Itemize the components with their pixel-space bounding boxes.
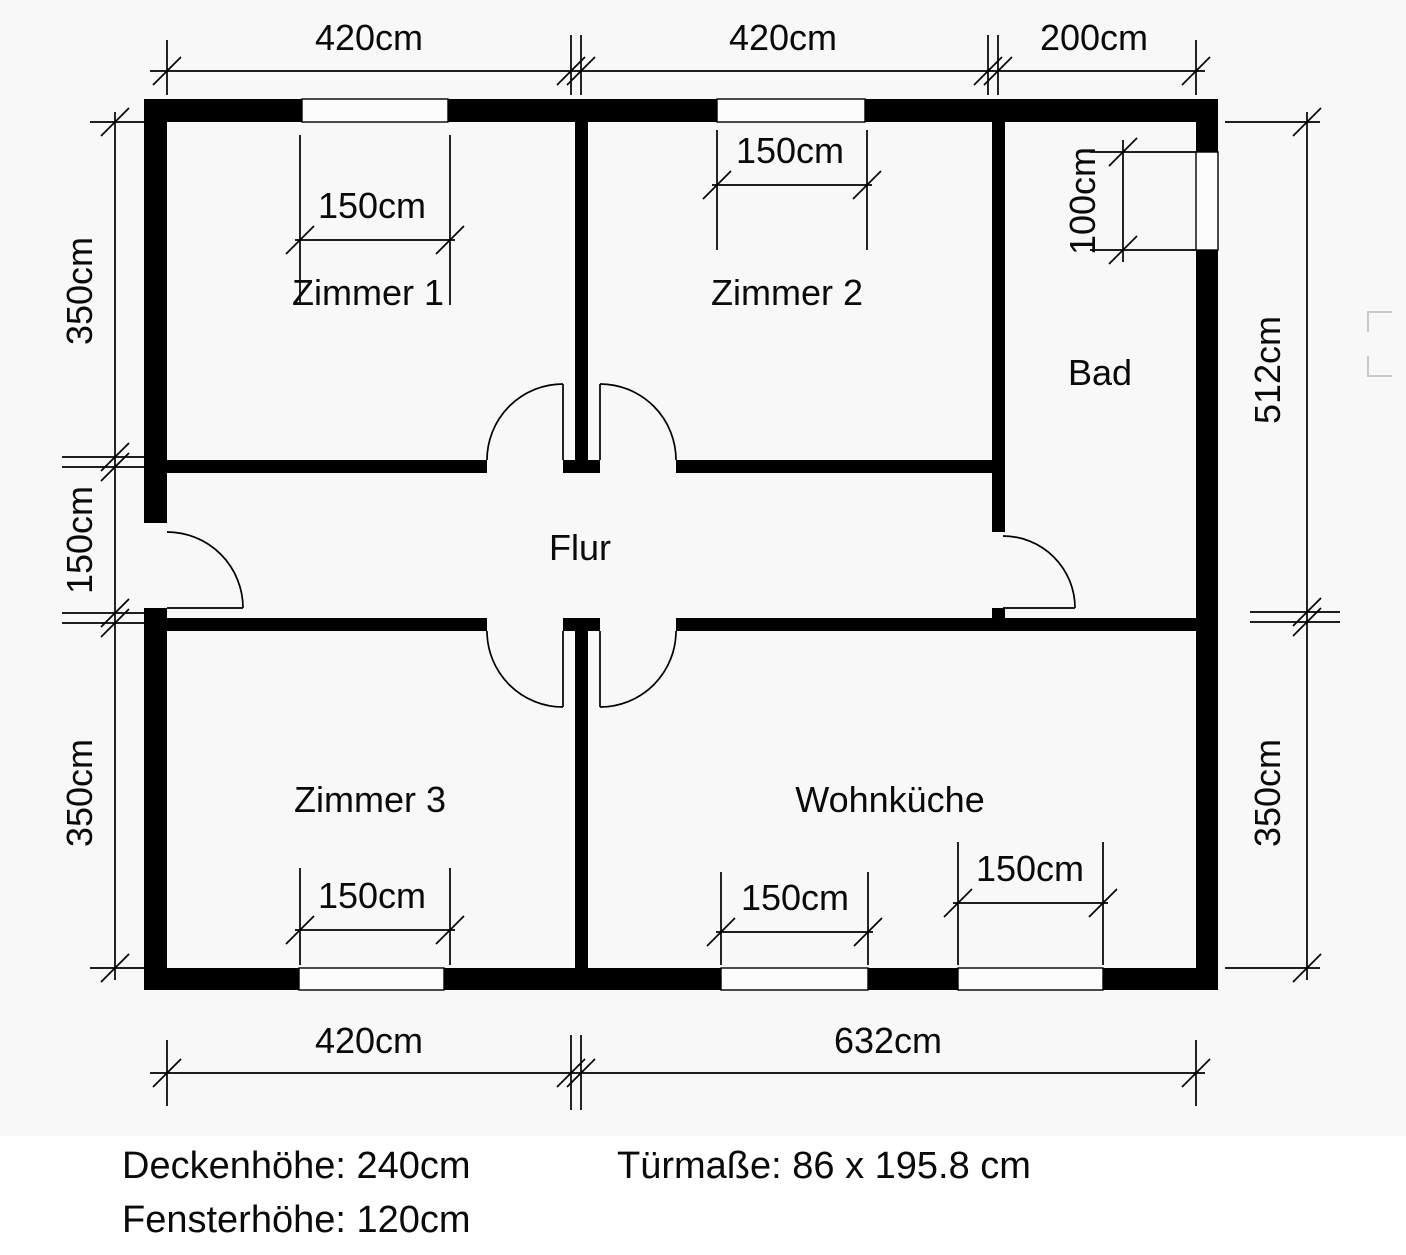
wall-zimmer3-wohnkueche bbox=[575, 618, 588, 968]
window-dim-label-zimmer2: 150cm bbox=[736, 130, 844, 171]
window-bad bbox=[1196, 152, 1218, 250]
window-zimmer3 bbox=[299, 968, 444, 990]
wall-left-lower bbox=[144, 608, 167, 990]
room-label-zimmer2: Zimmer 2 bbox=[711, 272, 863, 313]
dim-label-bottom-right: 632cm bbox=[834, 1020, 942, 1061]
note-door-size: Türmaße: 86 x 195.8 cm bbox=[617, 1145, 1031, 1187]
wall-flur-bottom-left bbox=[167, 618, 487, 631]
dim-label-left-mid: 150cm bbox=[59, 486, 100, 594]
room-label-flur: Flur bbox=[549, 527, 611, 568]
dim-label-top-right: 200cm bbox=[1040, 17, 1148, 58]
window-dim-label-bad: 100cm bbox=[1062, 147, 1103, 255]
dim-label-bottom-left: 420cm bbox=[315, 1020, 423, 1061]
dim-label-right-bottom: 350cm bbox=[1247, 739, 1288, 847]
dim-label-left-top: 350cm bbox=[59, 237, 100, 345]
room-label-wohnkueche: Wohnküche bbox=[795, 779, 984, 820]
room-label-zimmer1: Zimmer 1 bbox=[292, 272, 444, 313]
wall-left-upper bbox=[144, 99, 167, 523]
window-dim-label-zimmer1: 150cm bbox=[318, 185, 426, 226]
wall-bad-left-stub bbox=[992, 608, 1005, 631]
wall-bad-left bbox=[992, 122, 1005, 532]
wall-flur-bottom-right bbox=[676, 618, 1196, 631]
wall-zimmer1-zimmer2 bbox=[575, 122, 588, 473]
window-zimmer1 bbox=[302, 99, 448, 122]
dim-label-top-mid: 420cm bbox=[729, 17, 837, 58]
dim-label-left-bottom: 350cm bbox=[59, 739, 100, 847]
wall-flur-top-left bbox=[167, 460, 487, 473]
window-dim-label-zimmer3: 150cm bbox=[318, 875, 426, 916]
floor-plan-drawing: 420cm 420cm 200cm 420cm 632cm 350cm 150c… bbox=[0, 0, 1406, 1255]
room-label-zimmer3: Zimmer 3 bbox=[294, 779, 446, 820]
room-label-bad: Bad bbox=[1068, 352, 1132, 393]
plan-notes: Deckenhöhe: 240cm Fensterhöhe: 120cm Tür… bbox=[122, 1145, 1031, 1241]
plan-background bbox=[0, 0, 1406, 1136]
note-ceiling-height: Deckenhöhe: 240cm bbox=[122, 1145, 471, 1187]
window-dim-label-wohnkueche-left: 150cm bbox=[741, 877, 849, 918]
window-wohnkueche-left bbox=[721, 968, 868, 990]
note-window-height: Fensterhöhe: 120cm bbox=[122, 1199, 471, 1241]
window-dim-label-wohnkueche-right: 150cm bbox=[976, 848, 1084, 889]
dim-label-top-left: 420cm bbox=[315, 17, 423, 58]
dim-label-right-top: 512cm bbox=[1247, 316, 1288, 424]
wall-flur-top-stub bbox=[563, 460, 600, 473]
wall-flur-top-right bbox=[676, 460, 1005, 473]
window-zimmer2 bbox=[717, 99, 865, 122]
floor-plan-canvas: 420cm 420cm 200cm 420cm 632cm 350cm 150c… bbox=[0, 0, 1406, 1255]
window-wohnkueche-right bbox=[958, 968, 1103, 990]
wall-flur-bottom-stub bbox=[563, 618, 600, 631]
